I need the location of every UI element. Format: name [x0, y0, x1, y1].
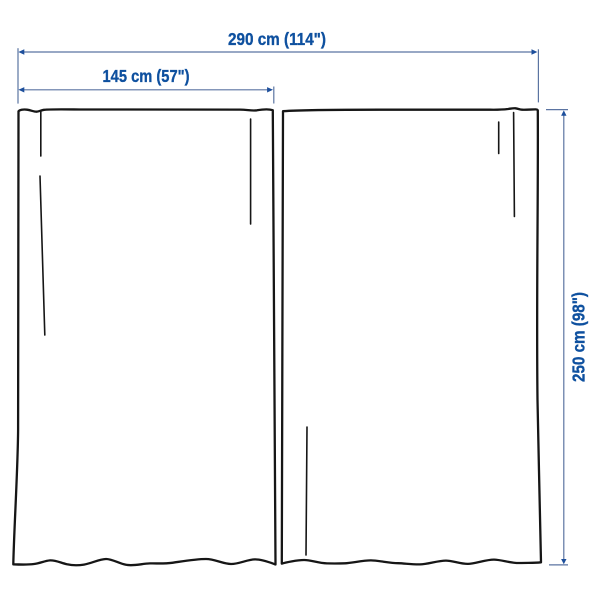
svg-text:145 cm (57"): 145 cm (57") — [103, 66, 190, 86]
svg-text:250 cm (98"): 250 cm (98") — [569, 292, 589, 382]
svg-text:290 cm (114"): 290 cm (114") — [228, 29, 326, 49]
